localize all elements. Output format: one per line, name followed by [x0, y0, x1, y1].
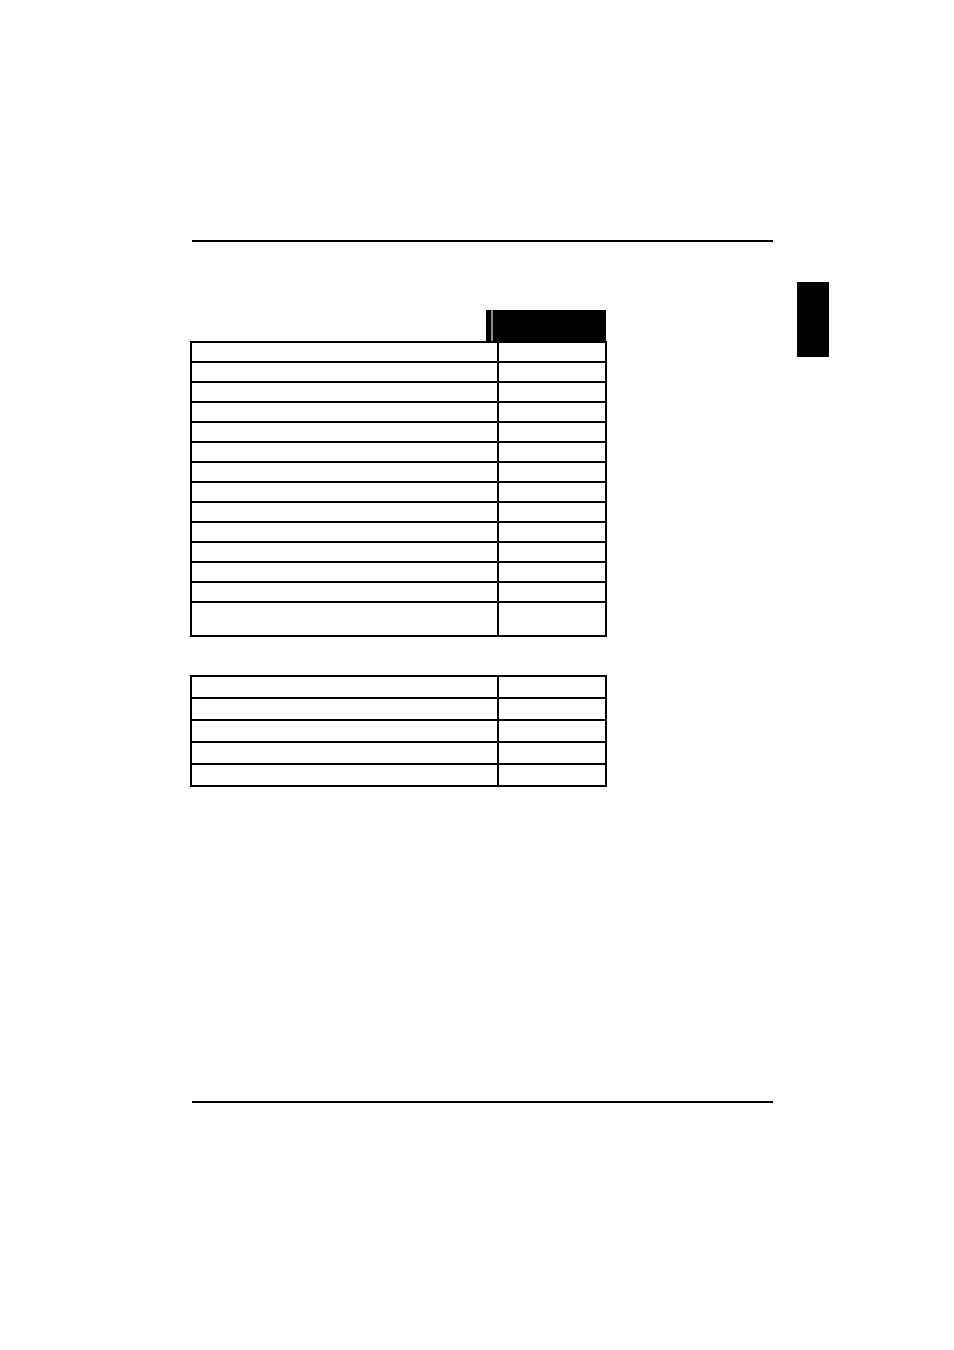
table-cell: [191, 382, 498, 402]
table1-header-cell: [486, 310, 606, 341]
table-row: [191, 382, 606, 402]
table-cell: [191, 562, 498, 582]
table-row: [191, 522, 606, 542]
table-cell: [498, 522, 606, 542]
table-cell: [498, 462, 606, 482]
table-cell: [498, 442, 606, 462]
table-row: [191, 462, 606, 482]
table-cell: [191, 542, 498, 562]
table-cell: [498, 562, 606, 582]
table-cell: [498, 764, 606, 786]
table-cell: [498, 342, 606, 362]
table-row: [191, 676, 606, 698]
table-row: [191, 502, 606, 522]
table-row: [191, 698, 606, 720]
table-cell: [191, 402, 498, 422]
table1-body: [191, 342, 606, 636]
table-row: [191, 582, 606, 602]
table-cell: [191, 522, 498, 542]
document-page: [0, 0, 954, 1350]
table-row: [191, 342, 606, 362]
table-cell: [191, 764, 498, 786]
table-row: [191, 720, 606, 742]
table-cell: [498, 698, 606, 720]
table-row: [191, 362, 606, 382]
table-cell: [498, 742, 606, 764]
table-cell: [498, 582, 606, 602]
table2: [190, 675, 607, 787]
table-cell: [498, 542, 606, 562]
table-cell: [191, 482, 498, 502]
table-cell: [191, 742, 498, 764]
table-cell: [191, 502, 498, 522]
table-cell: [191, 442, 498, 462]
table-cell: [191, 582, 498, 602]
table1: [190, 341, 607, 637]
table-cell: [498, 720, 606, 742]
table-cell: [191, 422, 498, 442]
table-cell: [498, 422, 606, 442]
table-row: [191, 482, 606, 502]
table-cell: [498, 482, 606, 502]
table-cell: [191, 462, 498, 482]
table-row: [191, 602, 606, 636]
table-cell: [498, 402, 606, 422]
table-cell: [191, 362, 498, 382]
table-cell: [498, 602, 606, 636]
header-cell-scan-line: [491, 310, 493, 341]
table-cell: [498, 502, 606, 522]
table-cell: [498, 382, 606, 402]
table-cell: [191, 602, 498, 636]
table2-body: [191, 676, 606, 786]
chapter-side-tab: [797, 282, 829, 357]
table-cell: [191, 676, 498, 698]
table-row: [191, 422, 606, 442]
table-row: [191, 742, 606, 764]
table-cell: [498, 676, 606, 698]
table-cell: [191, 342, 498, 362]
top-horizontal-rule: [192, 240, 773, 242]
table-cell: [191, 698, 498, 720]
bottom-horizontal-rule: [192, 1101, 773, 1103]
table-row: [191, 442, 606, 462]
table-row: [191, 402, 606, 422]
table-row: [191, 542, 606, 562]
table-row: [191, 764, 606, 786]
table-cell: [498, 362, 606, 382]
table-row: [191, 562, 606, 582]
table-cell: [191, 720, 498, 742]
